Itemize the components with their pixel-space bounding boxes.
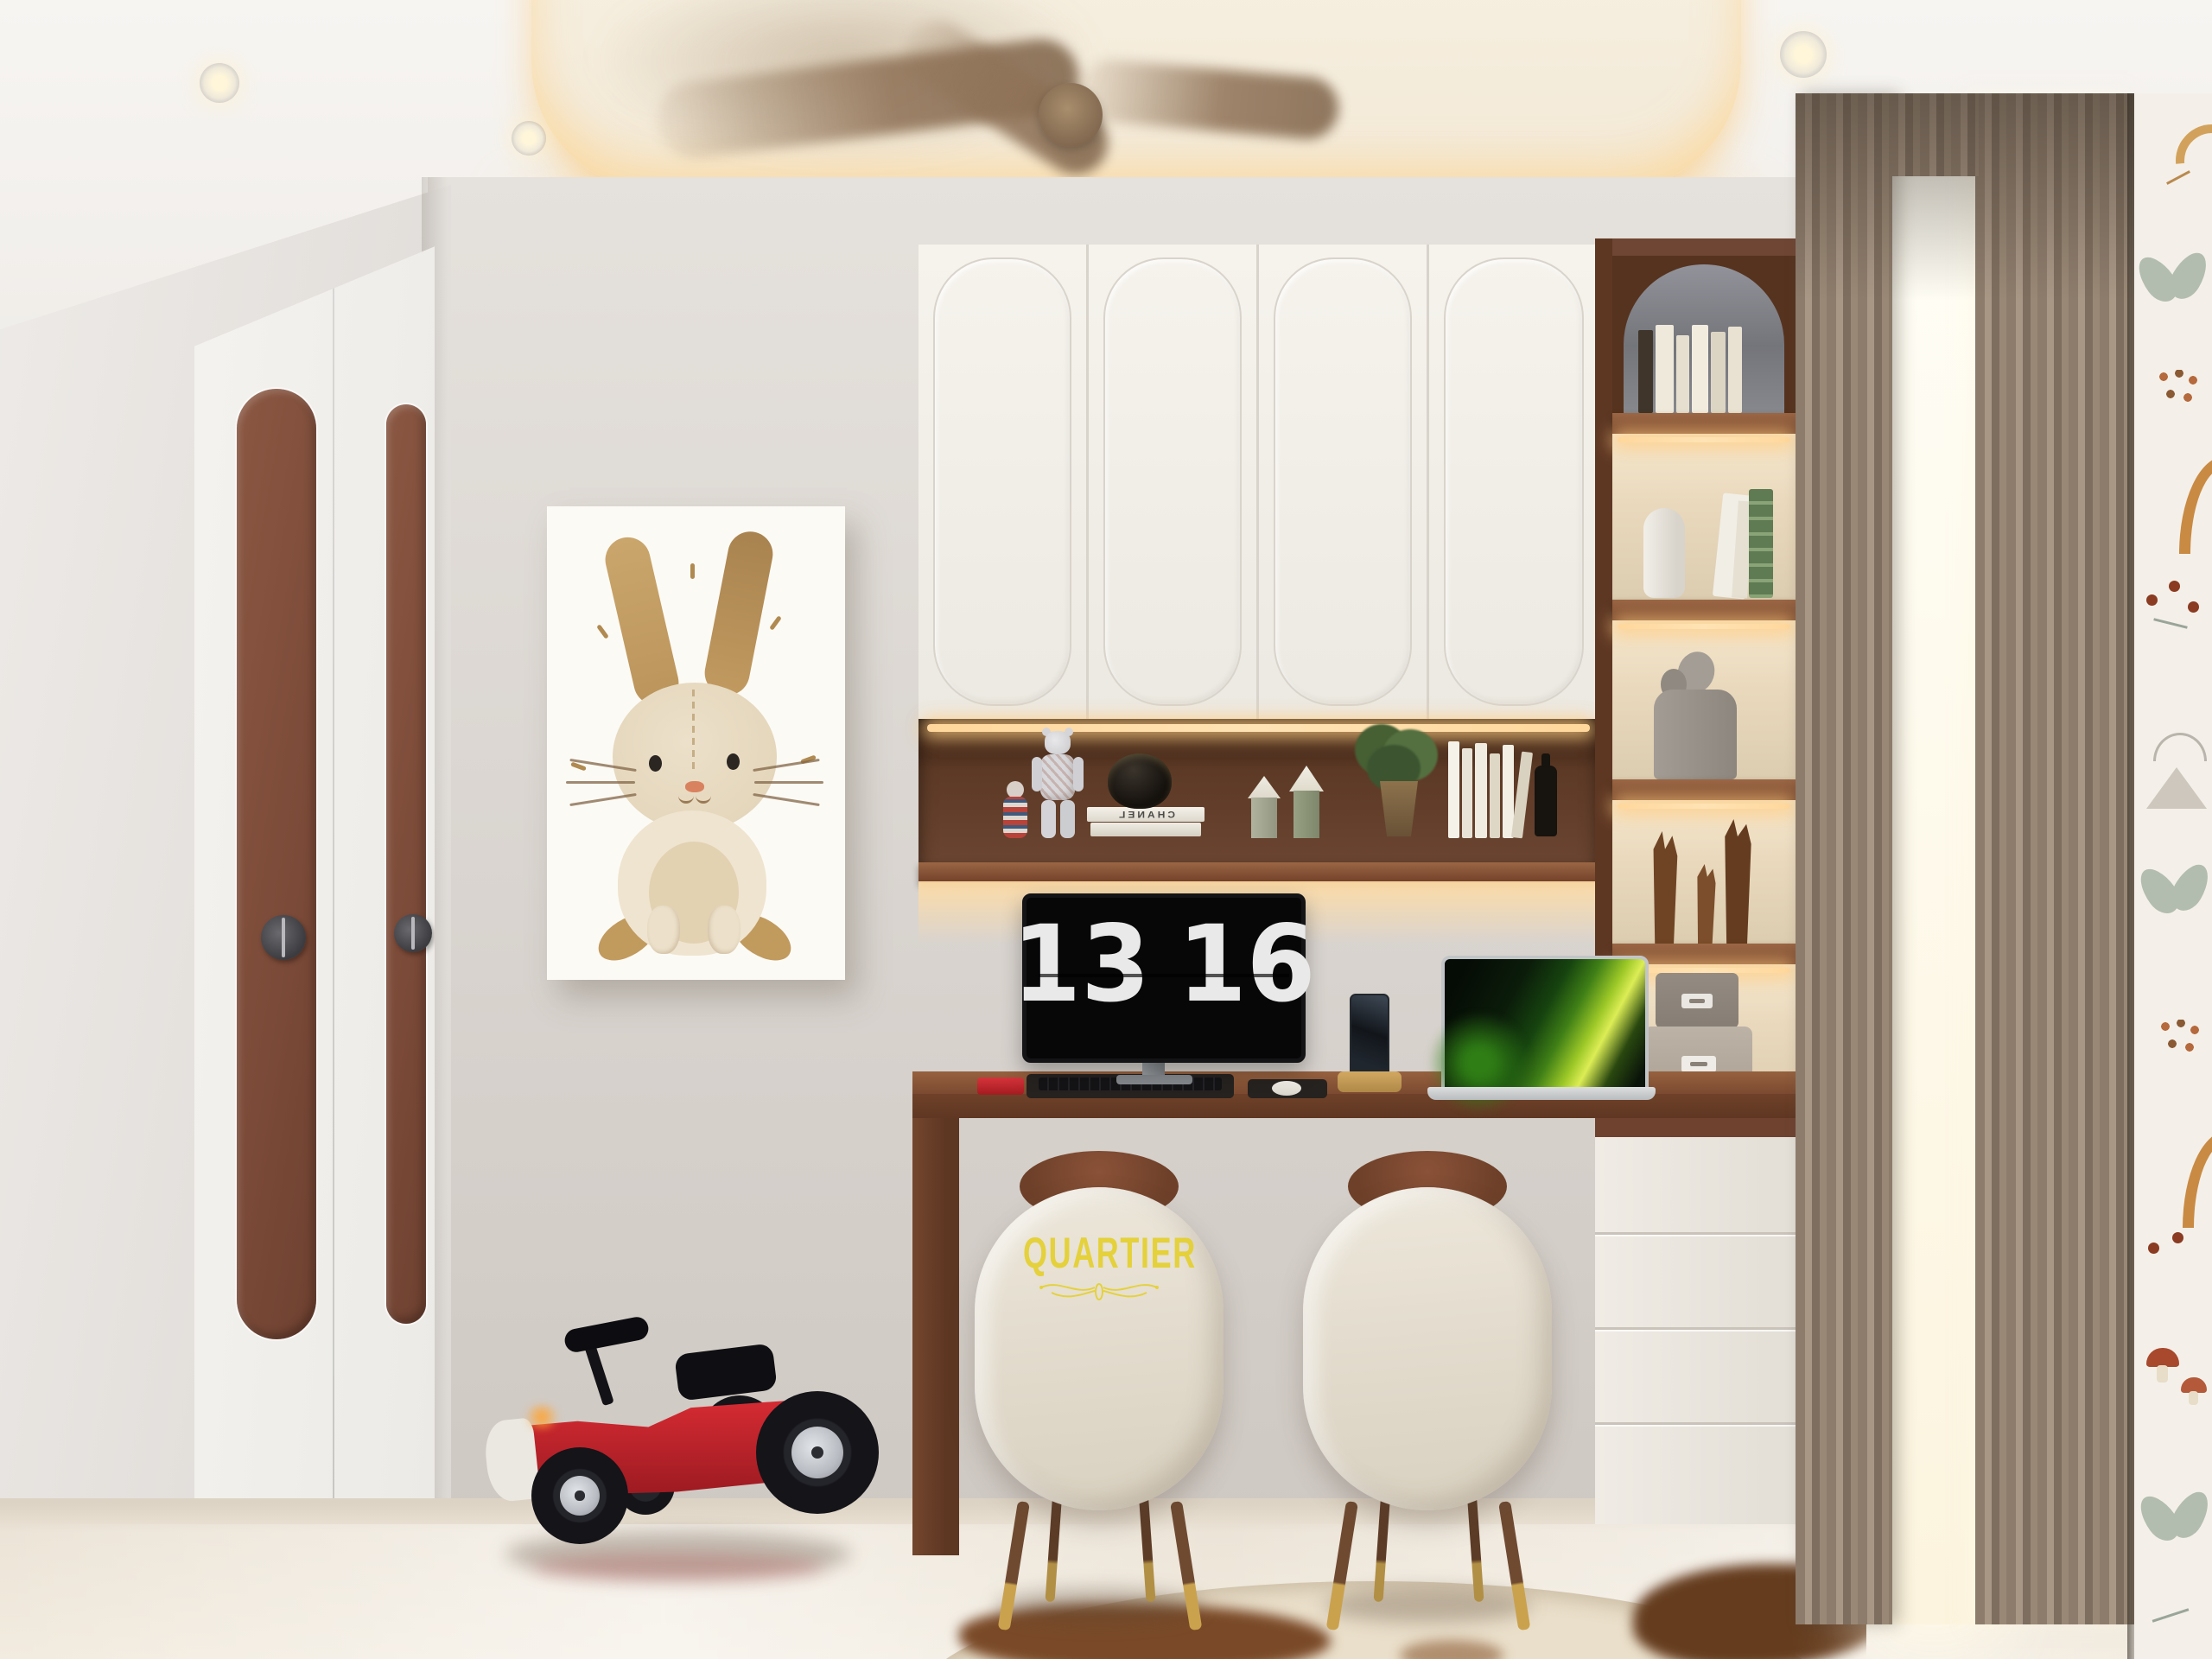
book-row [1448, 738, 1535, 838]
bearbrick-body [1040, 754, 1075, 800]
pencil-body [1251, 798, 1277, 838]
wallpaper-sprig [2152, 1608, 2190, 1622]
chanel-book-stack: CHANEL [1087, 807, 1205, 838]
watermark-flourish [1034, 1277, 1164, 1306]
curtain-top-shadow [1796, 93, 2134, 353]
book [1692, 325, 1708, 413]
bearbrick-arm [1073, 757, 1084, 791]
wardrobe-capsule-panel [237, 389, 316, 1339]
toy-car-steering-wheel [563, 1315, 650, 1354]
bookshelf-column [1595, 238, 1813, 1524]
toy-race-car [480, 1309, 886, 1603]
drawer-unit [1595, 1137, 1797, 1524]
toy-car-seat [674, 1343, 778, 1401]
pencil-tip [1289, 766, 1324, 791]
drawer-seam [1595, 1327, 1797, 1330]
wallpaper-berry [2146, 594, 2158, 606]
cabinet-door-groove [1444, 257, 1584, 706]
chair: QUARTIER [969, 1151, 1229, 1635]
potted-plant [1348, 724, 1441, 838]
bearbrick-leg [1060, 800, 1075, 838]
niche-led-strip [927, 724, 1590, 732]
ceiling-downlight [512, 121, 546, 156]
white-vase [1643, 508, 1685, 598]
wallpaper-berry [2172, 1232, 2183, 1243]
study-desk-leg [912, 1118, 959, 1555]
rabbit-stitch-line [692, 690, 695, 772]
wallpaper-arch-large [2183, 1130, 2212, 1228]
toy-car-wheel [756, 1391, 879, 1514]
chair-watermark: QUARTIER [1004, 1230, 1194, 1306]
plant-pot [1377, 781, 1421, 836]
book [1638, 330, 1653, 413]
chair-leg [1139, 1497, 1155, 1602]
box-label-slot [1690, 1062, 1707, 1066]
bear-head [1007, 781, 1024, 798]
wallpaper-berry [2148, 1243, 2159, 1254]
watermark-text: QUARTIER [1023, 1228, 1175, 1278]
interior-render: CHANEL [0, 0, 2212, 1659]
flip-clock-digits: 13 16 [1035, 898, 1294, 1017]
wardrobe-handle [394, 914, 432, 952]
ceiling-downlight [1780, 31, 1827, 78]
box-label [1681, 1056, 1716, 1072]
storage-box-small [1656, 973, 1738, 1028]
book [1711, 332, 1726, 413]
decor-bottle [1535, 766, 1557, 836]
rabbit-paw [708, 906, 741, 954]
toy-car-wheel [531, 1447, 628, 1544]
window-light [1889, 169, 1979, 1624]
rabbit-whisker [566, 781, 635, 784]
cabinet-door [1089, 245, 1259, 719]
arch-niche [1612, 256, 1796, 413]
wheel-hub [791, 1427, 843, 1478]
monitor-stand-base [1116, 1075, 1192, 1084]
wallpaper-sprig [2153, 618, 2188, 629]
toy-car-headlight-glint [523, 1404, 561, 1430]
rabbit-whisker [753, 793, 820, 806]
bearbrick-leg [1041, 800, 1056, 838]
drawer-seam [1595, 1422, 1797, 1425]
shelf-compartment [1612, 800, 1796, 944]
phone [1350, 994, 1389, 1080]
wardrobe-capsule-panel [386, 404, 426, 1324]
shelf-led-strip [1618, 804, 1790, 809]
pencil-body [1294, 791, 1319, 838]
pencil-tip [1248, 776, 1281, 798]
pencil-sculptures [1248, 766, 1327, 838]
cabinet-door [1429, 245, 1599, 719]
rabbit-whisker [754, 781, 823, 784]
bearbrick-arm [1032, 757, 1042, 791]
niche-shelf-board [918, 862, 1599, 883]
shelf-board [1612, 779, 1796, 800]
kids-wallpaper [2134, 93, 2212, 1659]
chair [1298, 1151, 1557, 1635]
chair-leg [1467, 1497, 1484, 1602]
poster-spark [690, 563, 695, 579]
book [1475, 743, 1487, 838]
shelf-compartment [1612, 434, 1796, 600]
book [1656, 325, 1674, 413]
couple-sculpture-body [1654, 690, 1737, 779]
rabbit-head [613, 683, 777, 831]
monitor-flip-clock: 13 16 [1022, 893, 1306, 1063]
flip-clock-split-line [1039, 974, 1289, 977]
chair-leg [1046, 1497, 1062, 1602]
wallpaper-arc [2161, 110, 2212, 212]
bearbrick-head [1045, 731, 1071, 754]
wallpaper-mountain [2146, 767, 2207, 809]
wallpaper-mushroom-stem [2189, 1391, 2198, 1405]
chair-leg [1374, 1497, 1390, 1602]
wallpaper-mushroom-stem [2157, 1365, 2168, 1382]
book [1462, 748, 1472, 838]
cabinet-door-groove [1274, 257, 1412, 706]
book [1511, 752, 1533, 839]
teddy-bear-figurine [1001, 781, 1030, 838]
cat-figurine [1692, 864, 1719, 944]
clock-minutes: 16 [1178, 912, 1316, 1017]
book: CHANEL [1087, 807, 1205, 822]
bear-body [1003, 797, 1027, 838]
arch-books [1638, 323, 1770, 413]
book [1090, 823, 1201, 836]
wallpaper-berry [2169, 581, 2180, 592]
shelf-board [1612, 413, 1796, 434]
wallpaper-berry [2188, 601, 2199, 613]
laptop-keyboard-deck [1427, 1087, 1656, 1100]
chair-shadow [995, 1588, 1203, 1623]
bearbrick-figurine [1033, 731, 1082, 838]
rabbit-eye [649, 755, 662, 772]
cabinet-door-groove [933, 257, 1071, 706]
book [1728, 327, 1742, 413]
poster-spark [769, 615, 782, 631]
fan-hub [1039, 83, 1103, 147]
rabbit-poster [547, 506, 845, 980]
drawer-seam [1595, 1232, 1797, 1235]
decor-bowl [1108, 753, 1172, 809]
rabbit-ear [601, 533, 683, 710]
book [1448, 741, 1459, 838]
cabinet-door-groove [1103, 257, 1242, 706]
wallpaper-dots [2158, 1020, 2200, 1061]
mouse [1272, 1081, 1301, 1096]
cat-figurine [1647, 831, 1683, 944]
wallpaper-arch-outline [2153, 733, 2207, 761]
clock-hours: 13 [1012, 912, 1150, 1017]
wardrobe-handle [261, 915, 306, 960]
cabinet-door [1259, 245, 1429, 719]
poster-spark [596, 624, 609, 639]
shelf-board [1612, 600, 1796, 620]
shelf-led-strip [1618, 437, 1790, 442]
book [1490, 753, 1500, 838]
wardrobe-door-seam [333, 259, 334, 1521]
ceiling-downlight [200, 63, 239, 103]
toy-car-reflection [531, 1553, 825, 1582]
green-book [1749, 489, 1773, 598]
wallpaper-arch-large [2179, 456, 2212, 554]
laptop-screen [1441, 956, 1649, 1096]
shelf-led-strip [1618, 624, 1790, 629]
book-spine-text: CHANEL [1116, 809, 1175, 820]
box-label [1681, 994, 1713, 1008]
book [1676, 335, 1689, 413]
toy-car-steering-column [584, 1344, 614, 1406]
chair-shadow [1324, 1588, 1531, 1623]
red-box [977, 1077, 1024, 1095]
wheel-hub [560, 1476, 600, 1516]
rabbit-paw [647, 906, 680, 954]
rabbit-eye [727, 753, 740, 770]
bottle-neck [1541, 753, 1550, 767]
shelf-compartment [1612, 620, 1796, 779]
rabbit-whisker [569, 793, 637, 806]
wallpaper-dots [2157, 370, 2198, 411]
phone-stand [1338, 1071, 1402, 1092]
box-label-slot [1689, 999, 1705, 1003]
cat-figurine [1718, 819, 1758, 944]
rabbit-ear [701, 528, 777, 699]
cabinet-door [918, 245, 1089, 719]
upper-cabinets [918, 245, 1599, 719]
wallpaper-mushroom [2146, 1348, 2179, 1367]
chair-back [1303, 1187, 1552, 1510]
